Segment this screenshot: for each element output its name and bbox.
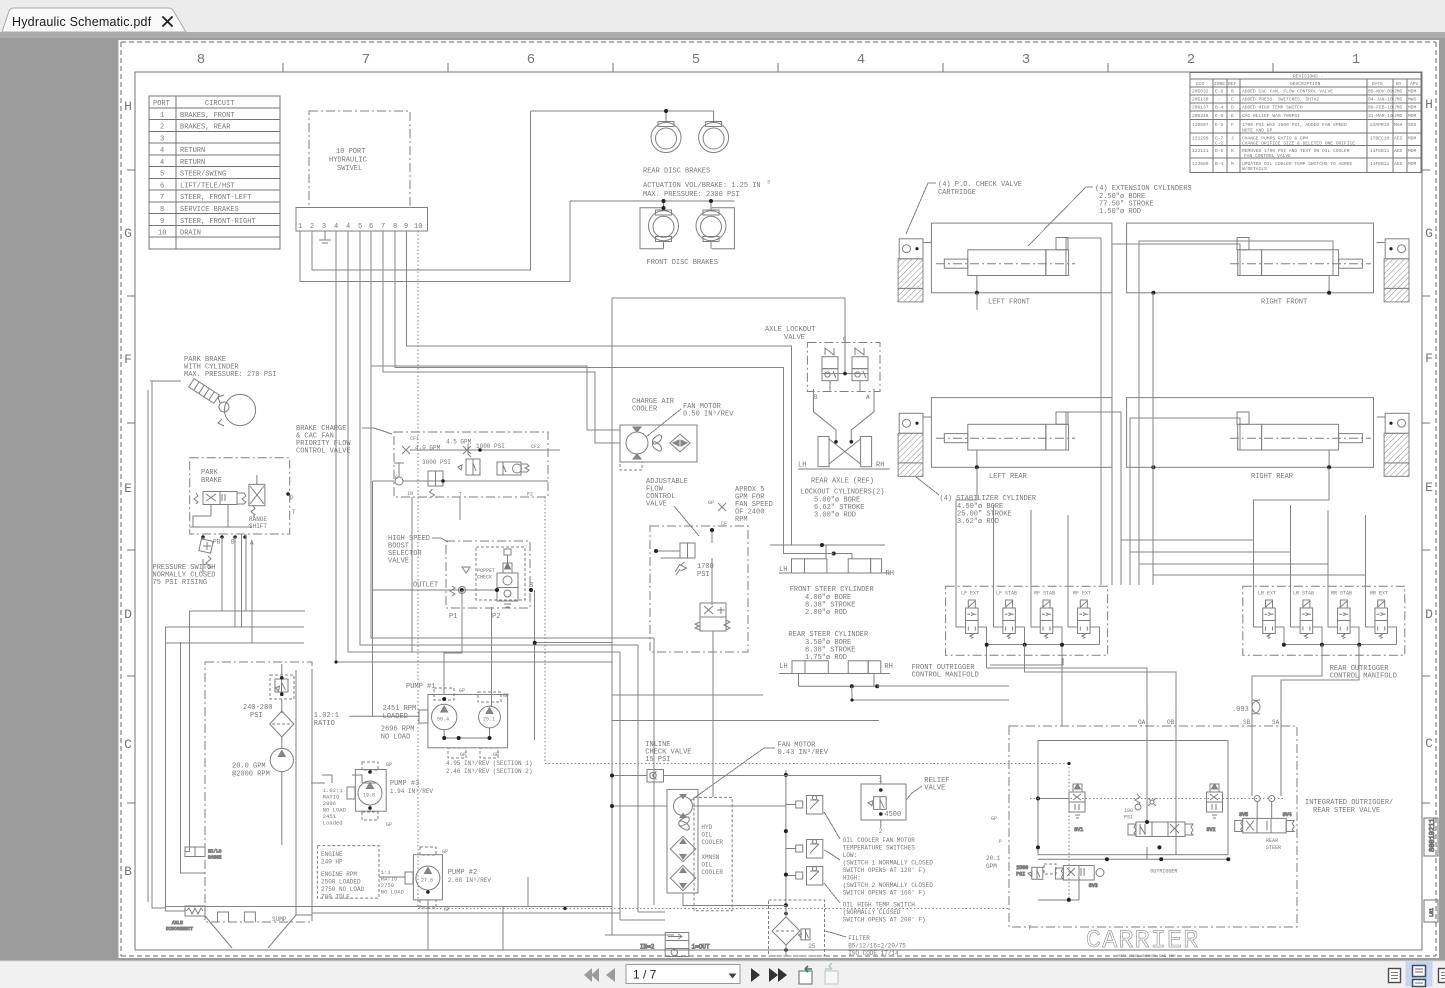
svg-text:RPM: RPM [735, 516, 748, 524]
svg-text:GP: GP [991, 816, 997, 822]
svg-text:25: 25 [808, 943, 816, 950]
svg-text:DESCRIPTION: DESCRIPTION [1290, 81, 1321, 87]
svg-text:10 PORT: 10 PORT [336, 148, 365, 156]
svg-text:T: T [1028, 925, 1032, 932]
svg-text:REAR STEER VALVE: REAR STEER VALVE [1313, 807, 1380, 815]
svg-text:(4) STABILIZER CYLINDER: (4) STABILIZER CYLINDER [940, 495, 1037, 503]
svg-text:RH: RH [884, 663, 892, 671]
svg-text:PARK: PARK [201, 469, 219, 477]
svg-text:80019211: 80019211 [1429, 818, 1437, 852]
svg-text:SWITCH OPENS AT 200' F): SWITCH OPENS AT 200' F) [843, 917, 926, 924]
svg-text:PSI: PSI [1124, 815, 1133, 821]
svg-text:RH: RH [876, 462, 884, 470]
svg-text:JMD: JMD [1394, 113, 1403, 119]
svg-text:P: P [999, 839, 1002, 845]
svg-text:F2: F2 [527, 492, 533, 498]
svg-text:AES: AES [1394, 136, 1403, 142]
svg-text:9: 9 [404, 223, 408, 231]
svg-text:REAR AXLE (REF): REAR AXLE (REF) [811, 478, 874, 486]
svg-text:H: H [1425, 97, 1433, 112]
svg-text:HYDRAULIC: HYDRAULIC [329, 157, 367, 165]
svg-text:CONTROL VALVE: CONTROL VALVE [296, 448, 351, 456]
svg-text:W/DETAILS: W/DETAILS [1242, 166, 1267, 172]
svg-text:E-5: E-5 [1215, 122, 1224, 128]
svg-text:10: 10 [158, 230, 166, 238]
svg-text:Hydraulic Schematic.pdf: Hydraulic Schematic.pdf [12, 15, 152, 29]
svg-text:A: A [866, 394, 870, 401]
svg-text:DISCONNECT: DISCONNECT [166, 926, 193, 932]
svg-text:121299: 121299 [1192, 136, 1209, 142]
svg-text:IN=2: IN=2 [640, 944, 655, 951]
svg-text:SV5: SV5 [1239, 812, 1248, 818]
svg-text:CONTROL MANIFOLD: CONTROL MANIFOLD [912, 672, 979, 680]
svg-text:AES: AES [1394, 148, 1403, 154]
svg-text:2500: 2500 [1016, 865, 1028, 871]
svg-text:GP: GP [459, 688, 465, 694]
svg-text:(SWITCH 1 NORMALLY CLOSED: (SWITCH 1 NORMALLY CLOSED [843, 860, 933, 867]
svg-text:ADDED HIGH TEMP SWITCH: ADDED HIGH TEMP SWITCH [1242, 105, 1303, 111]
svg-text:HYD: HYD [701, 824, 712, 831]
svg-text:REF: REF [1228, 81, 1237, 87]
svg-text:123680: 123680 [1192, 161, 1209, 167]
svg-text:6: 6 [369, 223, 373, 231]
svg-text:C: C [124, 737, 132, 752]
svg-text:2451 RPM: 2451 RPM [383, 705, 417, 713]
svg-text:F: F [124, 352, 132, 367]
svg-text:2500 LOADED: 2500 LOADED [321, 879, 361, 886]
svg-text:D: D [1231, 105, 1234, 111]
svg-text:4: 4 [334, 223, 338, 231]
svg-text:CARRIER: CARRIER [1086, 926, 1199, 955]
svg-text:PUMP #3: PUMP #3 [390, 780, 419, 788]
svg-text:VALVE: VALVE [388, 558, 409, 566]
svg-text:PSI: PSI [250, 712, 263, 720]
svg-text:OIL HIGH TEMP SWITCH: OIL HIGH TEMP SWITCH [843, 902, 915, 909]
svg-text:RR EXT: RR EXT [1370, 591, 1388, 597]
svg-text:6: 6 [160, 183, 164, 191]
svg-text:1700 PSI WAS 2500 PSI, ADDED F: 1700 PSI WAS 2500 PSI, ADDED FAN SPEED [1242, 122, 1347, 128]
svg-text:M: M [1231, 161, 1234, 167]
svg-text:8: 8 [393, 223, 397, 231]
svg-text:1: 1 [160, 112, 164, 120]
svg-text:POPPET: POPPET [477, 568, 495, 574]
svg-text:RANGE: RANGE [249, 516, 267, 523]
svg-text:MAX. PRESSURE: 2300 PSI: MAX. PRESSURE: 2300 PSI [643, 191, 740, 199]
svg-text:SA: SA [1272, 719, 1280, 726]
svg-text:120597: 120597 [1192, 122, 1209, 128]
svg-text:100: 100 [1124, 808, 1133, 814]
svg-text:LR EXT: LR EXT [1258, 591, 1276, 597]
svg-text:4: 4 [857, 52, 865, 68]
svg-text:G: G [1425, 226, 1433, 241]
svg-text:17DEC10: 17DEC10 [1370, 136, 1390, 142]
svg-text:4.95 IN³/REV (SECTION 1): 4.95 IN³/REV (SECTION 1) [446, 760, 532, 767]
svg-text:04-JAN-10: 04-JAN-10 [1368, 97, 1393, 103]
svg-text:CONTROL MANIFOLD: CONTROL MANIFOLD [1330, 673, 1397, 681]
svg-text:GP: GP [442, 849, 448, 855]
svg-text:@2000 RPM: @2000 RPM [232, 771, 270, 779]
svg-text:SB: SB [1243, 719, 1251, 726]
svg-text:K: K [1231, 148, 1234, 154]
svg-text:2750 NO LOAD: 2750 NO LOAD [321, 886, 365, 893]
svg-text:P: P [290, 495, 294, 502]
svg-text:B: B [124, 864, 132, 879]
svg-text:1.50"ø ROD: 1.50"ø ROD [1099, 208, 1141, 216]
svg-text:NOTE AND GP: NOTE AND GP [1242, 128, 1273, 134]
svg-text:1 / 7: 1 / 7 [633, 968, 657, 982]
svg-text:ADDED CAC FAN, FLOW CONTROL VA: ADDED CAC FAN, FLOW CONTROL VALVE [1242, 89, 1333, 95]
svg-text:LH: LH [779, 663, 787, 671]
svg-text:OIL: OIL [701, 862, 712, 869]
svg-text:L01: L01 [1429, 908, 1435, 917]
svg-text:3.00"ø ROD: 3.00"ø ROD [814, 512, 856, 520]
svg-text:D-5: D-5 [1215, 148, 1224, 154]
svg-text:1.94 IN³/REV: 1.94 IN³/REV [390, 788, 434, 795]
svg-text:E: E [1425, 480, 1433, 495]
svg-text:1: 1 [298, 223, 302, 231]
svg-text:SWIVEL: SWIVEL [337, 165, 362, 173]
svg-text:CHECK: CHECK [477, 575, 492, 581]
svg-text:GP: GP [460, 752, 466, 758]
svg-text:LIFT/TELE/HST: LIFT/TELE/HST [180, 183, 235, 191]
svg-text:0.50 IN³/REV: 0.50 IN³/REV [683, 411, 734, 419]
svg-text:2: 2 [1187, 52, 1195, 68]
svg-text:7: 7 [381, 223, 385, 231]
svg-text:SV4: SV4 [1283, 812, 1292, 818]
svg-text:BRAKE: BRAKE [201, 477, 222, 485]
svg-text:LH: LH [779, 566, 787, 574]
svg-text:BY: BY [1396, 81, 1402, 87]
svg-text:F: F [1231, 122, 1234, 128]
svg-text:75 PSI RISING: 75 PSI RISING [153, 579, 208, 587]
svg-text:T: T [292, 509, 296, 516]
svg-text:CF2: CF2 [531, 444, 540, 450]
svg-text:B5/12/16=2/20/75: B5/12/16=2/20/75 [848, 943, 906, 950]
svg-text:5: 5 [692, 52, 700, 68]
svg-text:CARTRIDGE: CARTRIDGE [938, 189, 976, 197]
svg-text:LF EXT: LF EXT [961, 591, 979, 597]
svg-text:2: 2 [310, 223, 314, 231]
svg-text:(NORMALLY CLOSED: (NORMALLY CLOSED [843, 909, 901, 916]
svg-text:11FEB11: 11FEB11 [1370, 148, 1390, 154]
svg-text:SERVICE BRAKES: SERVICE BRAKES [180, 206, 239, 214]
svg-text:2696 RPM: 2696 RPM [381, 726, 415, 734]
svg-text:DATE: DATE [1372, 81, 1383, 87]
svg-text:G: G [124, 226, 132, 241]
svg-text:4: 4 [160, 147, 164, 155]
svg-text:LOADED: LOADED [383, 713, 408, 721]
svg-text:4500: 4500 [884, 811, 901, 819]
svg-text:700 IDLE: 700 IDLE [321, 894, 350, 901]
svg-text:VALVE: VALVE [784, 334, 805, 342]
svg-text:SV2: SV2 [1207, 827, 1216, 833]
svg-text:GP: GP [386, 822, 392, 828]
svg-text:REAR DISC BRAKES: REAR DISC BRAKES [643, 168, 710, 176]
svg-text:OIL COOLER FAN MOTOR: OIL COOLER FAN MOTOR [843, 837, 915, 844]
svg-text:CIRCUIT: CIRCUIT [205, 100, 234, 108]
svg-text:AES: AES [1394, 161, 1403, 167]
svg-text:SV3: SV3 [1089, 883, 1098, 889]
svg-text:RETURN: RETURN [180, 147, 205, 155]
svg-text:RF STAB: RF STAB [1034, 591, 1055, 597]
svg-text:5: 5 [358, 223, 362, 231]
svg-text:25.1: 25.1 [483, 717, 495, 723]
svg-text:HI/LO: HI/LO [208, 849, 222, 855]
svg-text:3: 3 [767, 180, 770, 186]
svg-text:TEMPERATURE SWITCHES: TEMPERATURE SWITCHES [843, 845, 915, 852]
svg-text:MDM: MDM [1408, 105, 1417, 111]
svg-text:4: 4 [160, 159, 164, 167]
svg-text:6: 6 [527, 52, 535, 68]
svg-text:COOLER: COOLER [632, 406, 658, 414]
svg-text:P1: P1 [449, 613, 457, 621]
svg-text:E: E [1231, 113, 1234, 119]
svg-text:D: D [1425, 607, 1433, 622]
svg-text:PUMP #1: PUMP #1 [406, 683, 435, 691]
svg-text:19.8: 19.8 [363, 793, 375, 799]
svg-text:REAR STEER CYLINDER: REAR STEER CYLINDER [788, 631, 869, 639]
svg-text:ZONE: ZONE [1214, 81, 1225, 87]
svg-text:4: 4 [346, 223, 350, 231]
svg-text:-: - [1218, 98, 1221, 103]
svg-text:DRAIN: DRAIN [180, 230, 201, 238]
svg-text:B-4: B-4 [1215, 161, 1224, 167]
svg-text:3: 3 [160, 135, 164, 143]
svg-text:SGS: SGS [1408, 122, 1417, 128]
svg-text:OA: OA [1138, 719, 1146, 726]
svg-text:LOCKOUT CYLINDERS(2): LOCKOUT CYLINDERS(2) [800, 489, 884, 497]
svg-text:LOW:: LOW: [843, 852, 857, 859]
svg-text:15 PSI: 15 PSI [645, 756, 670, 764]
svg-text:23APR10: 23APR10 [1370, 122, 1390, 128]
svg-text:PSI: PSI [697, 571, 710, 579]
svg-text:OUTRIGGER: OUTRIGGER [1150, 869, 1177, 875]
svg-text:7: 7 [160, 194, 164, 202]
svg-text:50.4: 50.4 [437, 717, 449, 723]
svg-text:OUTLET: OUTLET [413, 582, 438, 590]
svg-text:B: B [1231, 89, 1234, 95]
svg-text:206137: 206137 [1192, 105, 1209, 111]
svg-text:ACTUATION VOL/BRAKE: 1.25 IN: ACTUATION VOL/BRAKE: 1.25 IN [643, 182, 761, 190]
svg-text:10: 10 [414, 223, 422, 231]
svg-text:CHANGE ORIFICE SIZE & DELETED: CHANGE ORIFICE SIZE & DELETED ONE ORIFIC… [1242, 141, 1355, 147]
svg-text:20.0 GPM: 20.0 GPM [232, 763, 266, 771]
svg-text:ENGINE RPM: ENGINE RPM [321, 871, 357, 878]
svg-text:1=OUT: 1=OUT [692, 944, 710, 951]
svg-text:REAR: REAR [1266, 838, 1278, 844]
svg-text:RANGE: RANGE [208, 855, 222, 861]
svg-text:09-FEB-10: 09-FEB-10 [1368, 105, 1393, 111]
svg-text:RF EXT: RF EXT [1073, 591, 1091, 597]
svg-text:F: F [1425, 351, 1433, 366]
svg-text:ENGINE: ENGINE [321, 851, 343, 858]
svg-text:APV: APV [1410, 81, 1419, 87]
svg-text:LH: LH [798, 462, 806, 470]
svg-text:LEFT REAR: LEFT REAR [989, 473, 1028, 481]
svg-text:OIL: OIL [701, 832, 712, 839]
svg-text:RIGHT FRONT: RIGHT FRONT [1261, 299, 1307, 307]
svg-text:MDM: MDM [1408, 136, 1417, 142]
svg-text:STEER: STEER [1266, 845, 1281, 851]
svg-text:240 HP: 240 HP [321, 859, 343, 866]
svg-text:B: B [231, 539, 235, 546]
svg-text:FRONT DISC BRAKES: FRONT DISC BRAKES [647, 259, 718, 267]
svg-text:9: 9 [160, 218, 164, 226]
svg-text:3: 3 [322, 223, 326, 231]
svg-text:1: 1 [1352, 52, 1360, 68]
svg-text:AXLE: AXLE [172, 920, 183, 926]
svg-text:BRAKES, REAR: BRAKES, REAR [180, 124, 231, 132]
svg-text:FRONT STEER CYLINDER: FRONT STEER CYLINDER [790, 586, 875, 594]
svg-text:(4) EXTENSION CYLINDERS: (4) EXTENSION CYLINDERS [1095, 185, 1192, 193]
svg-text:1700: 1700 [697, 563, 714, 571]
svg-text:RETURN: RETURN [180, 159, 205, 167]
svg-text:JMD: JMD [1394, 89, 1403, 95]
svg-text:206346: 206346 [1192, 113, 1209, 119]
svg-text:SUMP: SUMP [272, 916, 287, 923]
svg-text:MDM: MDM [1408, 89, 1417, 95]
svg-text:COOLER: COOLER [701, 869, 723, 876]
svg-text:BRAKES, FRONT: BRAKES, FRONT [180, 112, 235, 120]
svg-text:B-4: B-4 [1215, 105, 1224, 111]
svg-text:MAH: MAH [1394, 122, 1403, 128]
svg-text:STEER, FRONT-LEFT: STEER, FRONT-LEFT [180, 194, 251, 202]
svg-text:3000 PSI: 3000 PSI [422, 459, 451, 466]
svg-text:2.46 IN³/REV (SECTION 2): 2.46 IN³/REV (SECTION 2) [446, 768, 532, 775]
svg-text:NO LOAD: NO LOAD [381, 734, 410, 742]
svg-text:E-6: E-6 [1215, 113, 1224, 119]
svg-text:GP: GP [386, 762, 392, 768]
svg-text:INTEGRATED OUTRIGGER/: INTEGRATED OUTRIGGER/ [1305, 799, 1393, 807]
svg-text:E: E [124, 481, 132, 496]
svg-text:20.1: 20.1 [986, 855, 1001, 862]
svg-text:2: 2 [160, 124, 164, 132]
svg-text:AXLE LOCKOUT: AXLE LOCKOUT [765, 326, 815, 334]
svg-text:3: 3 [1022, 52, 1030, 68]
svg-text:RATIO: RATIO [314, 720, 335, 728]
svg-text:ADDED PRESS. SWITCHES, SHT#2: ADDED PRESS. SWITCHES, SHT#2 [1242, 97, 1319, 103]
svg-text:MWS: MWS [1408, 97, 1417, 103]
svg-text:SWITCH OPENS AT 160' F): SWITCH OPENS AT 160' F) [843, 890, 926, 897]
svg-text:31-MAR-10: 31-MAR-10 [1368, 113, 1393, 119]
svg-text:2: 2 [879, 828, 883, 835]
svg-text:1.02:1: 1.02:1 [314, 712, 339, 720]
svg-text:VALVE: VALVE [924, 785, 945, 793]
svg-text:IN: IN [407, 491, 413, 497]
svg-text:205130: 205130 [1192, 97, 1209, 103]
svg-text:PB: PB [213, 539, 221, 546]
svg-text:GP: GP [493, 752, 499, 758]
svg-text:8: 8 [160, 206, 164, 214]
svg-text:RIGHT REAR: RIGHT REAR [1251, 473, 1294, 481]
svg-text:240-280: 240-280 [243, 704, 272, 712]
svg-text:SHIFT: SHIFT [249, 523, 267, 530]
svg-text:C: C [1231, 97, 1234, 103]
svg-text:JMD: JMD [1394, 105, 1403, 111]
svg-text:H: H [124, 99, 132, 114]
svg-text:05-NOV-09: 05-NOV-09 [1368, 89, 1393, 95]
svg-text:MAX. PRESSURE: 270 PSI: MAX. PRESSURE: 270 PSI [184, 371, 276, 379]
svg-text:D: D [124, 607, 132, 622]
svg-text:5: 5 [160, 171, 164, 179]
svg-text:11FEB11: 11FEB11 [1370, 161, 1390, 167]
svg-text:LEFT FRONT: LEFT FRONT [988, 299, 1030, 307]
svg-text:2.00"ø ROD: 2.00"ø ROD [805, 609, 847, 617]
svg-text:COOLER: COOLER [701, 839, 723, 846]
svg-text:FILTER: FILTER [848, 935, 870, 942]
svg-text:JMD: JMD [1394, 97, 1403, 103]
svg-text:MDM: MDM [1408, 161, 1417, 167]
svg-text:GP: GP [444, 907, 450, 913]
svg-text:CAC RELIEF WAS 700PSI: CAC RELIEF WAS 700PSI [1242, 113, 1300, 119]
svg-text:.093: .093 [1232, 706, 1249, 714]
svg-text:(SWITCH 2 NORMALLY CLOSED: (SWITCH 2 NORMALLY CLOSED [843, 882, 933, 889]
svg-text:RH: RH [886, 570, 894, 578]
svg-text:LF STAB: LF STAB [996, 591, 1017, 597]
svg-text:MDM: MDM [1408, 113, 1417, 119]
svg-text:PORT: PORT [153, 100, 170, 108]
svg-text:MDM: MDM [1408, 148, 1417, 154]
svg-text:XMNSN: XMNSN [701, 854, 719, 861]
svg-text:VALVE: VALVE [646, 501, 667, 509]
svg-text:1: 1 [879, 777, 883, 784]
svg-text:7: 7 [362, 52, 370, 68]
svg-text:GPM: GPM [986, 863, 997, 870]
svg-text:T: T [459, 492, 462, 498]
svg-text:J: J [1231, 136, 1234, 142]
svg-text:C-2: C-2 [1215, 141, 1224, 147]
svg-text:ECO: ECO [1196, 81, 1205, 87]
svg-text:LR STAB: LR STAB [1293, 591, 1314, 597]
svg-text:2.68 IN³/REV: 2.68 IN³/REV [448, 877, 492, 884]
svg-text:122141: 122141 [1192, 148, 1209, 154]
svg-text:27.8: 27.8 [421, 878, 433, 884]
svg-text:8: 8 [197, 52, 205, 68]
svg-text:C: C [1425, 736, 1433, 751]
svg-text:MATL TOOL SMANTD SAE TMS: MATL TOOL SMANTD SAE TMS [1118, 955, 1176, 959]
svg-text:PUMP #2: PUMP #2 [448, 869, 477, 877]
svg-text:NO LOAD: NO LOAD [381, 889, 405, 896]
svg-text:HIGH:: HIGH: [843, 875, 861, 882]
svg-text:REVISIONS -: REVISIONS - [1293, 74, 1323, 80]
svg-text:GP: GP [708, 500, 714, 506]
svg-text:GP: GP [503, 693, 509, 699]
svg-text:SWITCH OPENS AT 120' F): SWITCH OPENS AT 120' F) [843, 867, 926, 874]
svg-text:OB: OB [1167, 719, 1175, 726]
svg-text:0.43 IN³/REV: 0.43 IN³/REV [778, 749, 829, 757]
svg-text:Loaded: Loaded [323, 820, 343, 827]
svg-text:E-6: E-6 [1215, 89, 1224, 95]
svg-text:205032: 205032 [1192, 89, 1209, 95]
svg-text:STEER/SWING: STEER/SWING [180, 171, 226, 179]
svg-text:STEER, FRONT-RIGHT: STEER, FRONT-RIGHT [180, 218, 256, 226]
svg-text:B: B [814, 394, 818, 401]
svg-text:FAN CONTROL VALVE: FAN CONTROL VALVE [1244, 153, 1291, 159]
svg-text:RR STAB: RR STAB [1331, 591, 1352, 597]
svg-text:SV1: SV1 [1074, 827, 1083, 833]
svg-text:(4) P.O. CHECK VALVE: (4) P.O. CHECK VALVE [938, 181, 1022, 189]
svg-text:PSI: PSI [1016, 872, 1025, 878]
svg-text:3.62"ø ROD: 3.62"ø ROD [957, 518, 999, 526]
svg-text:P2: P2 [492, 613, 500, 621]
svg-text:ISO CODE 17/14: ISO CODE 17/14 [848, 950, 899, 957]
